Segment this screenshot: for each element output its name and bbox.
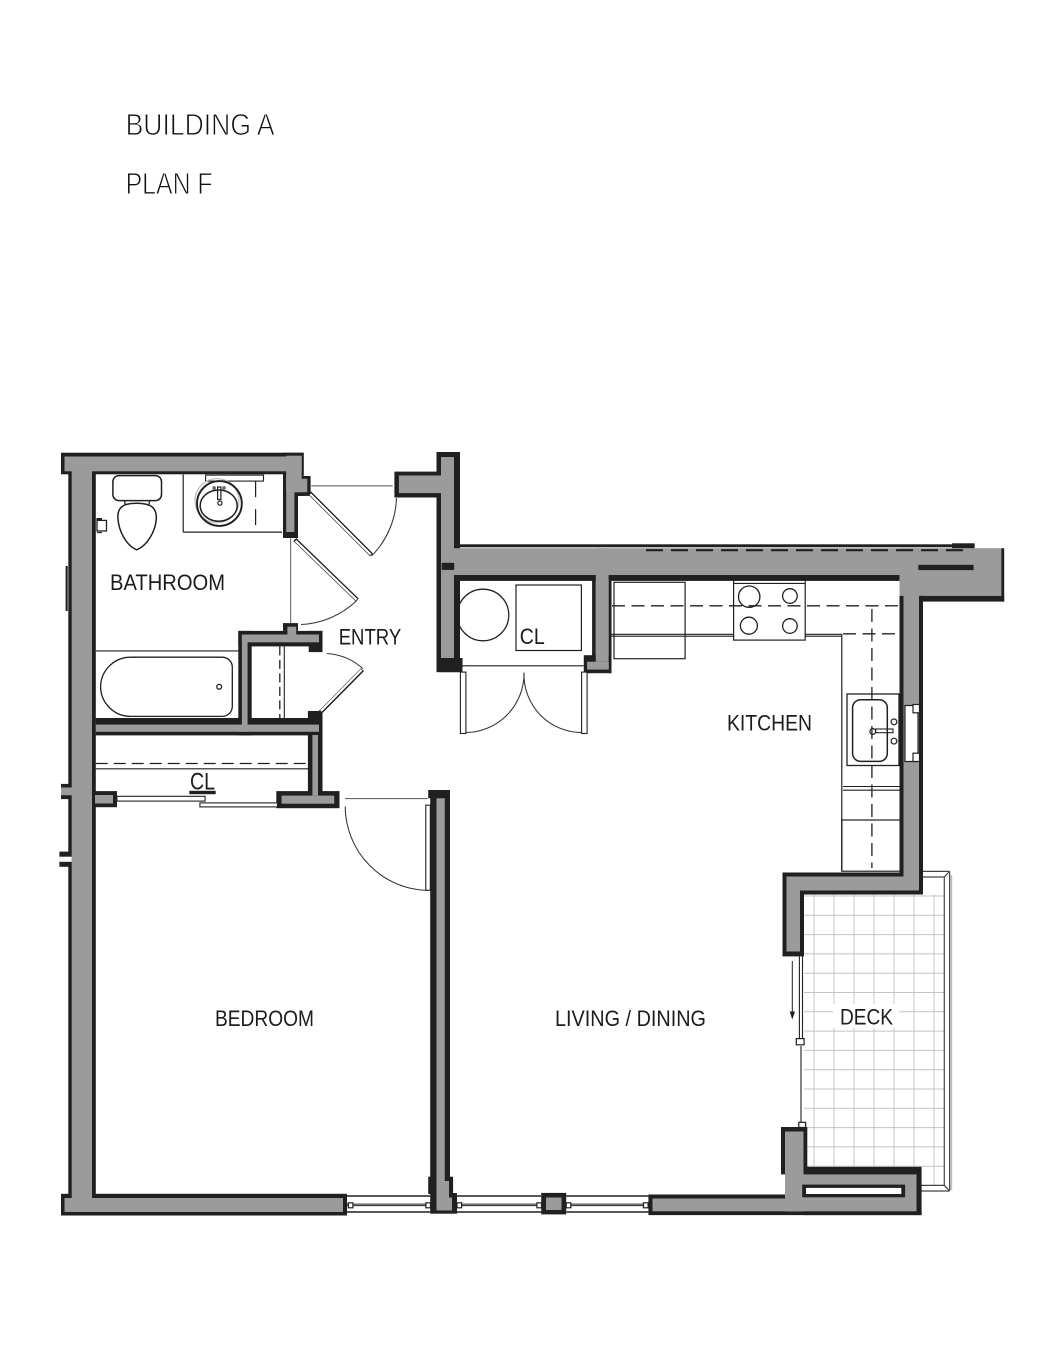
svg-text:BUILDING A: BUILDING A (126, 107, 275, 142)
svg-text:DECK: DECK (840, 1005, 893, 1030)
svg-text:CL: CL (520, 624, 545, 649)
svg-text:BATHROOM: BATHROOM (110, 570, 225, 595)
svg-text:ENTRY: ENTRY (339, 624, 402, 649)
svg-text:LIVING / DINING: LIVING / DINING (555, 1006, 706, 1031)
svg-text:BEDROOM: BEDROOM (215, 1006, 314, 1031)
svg-text:KITCHEN: KITCHEN (727, 711, 812, 736)
svg-text:PLAN F: PLAN F (126, 166, 213, 201)
